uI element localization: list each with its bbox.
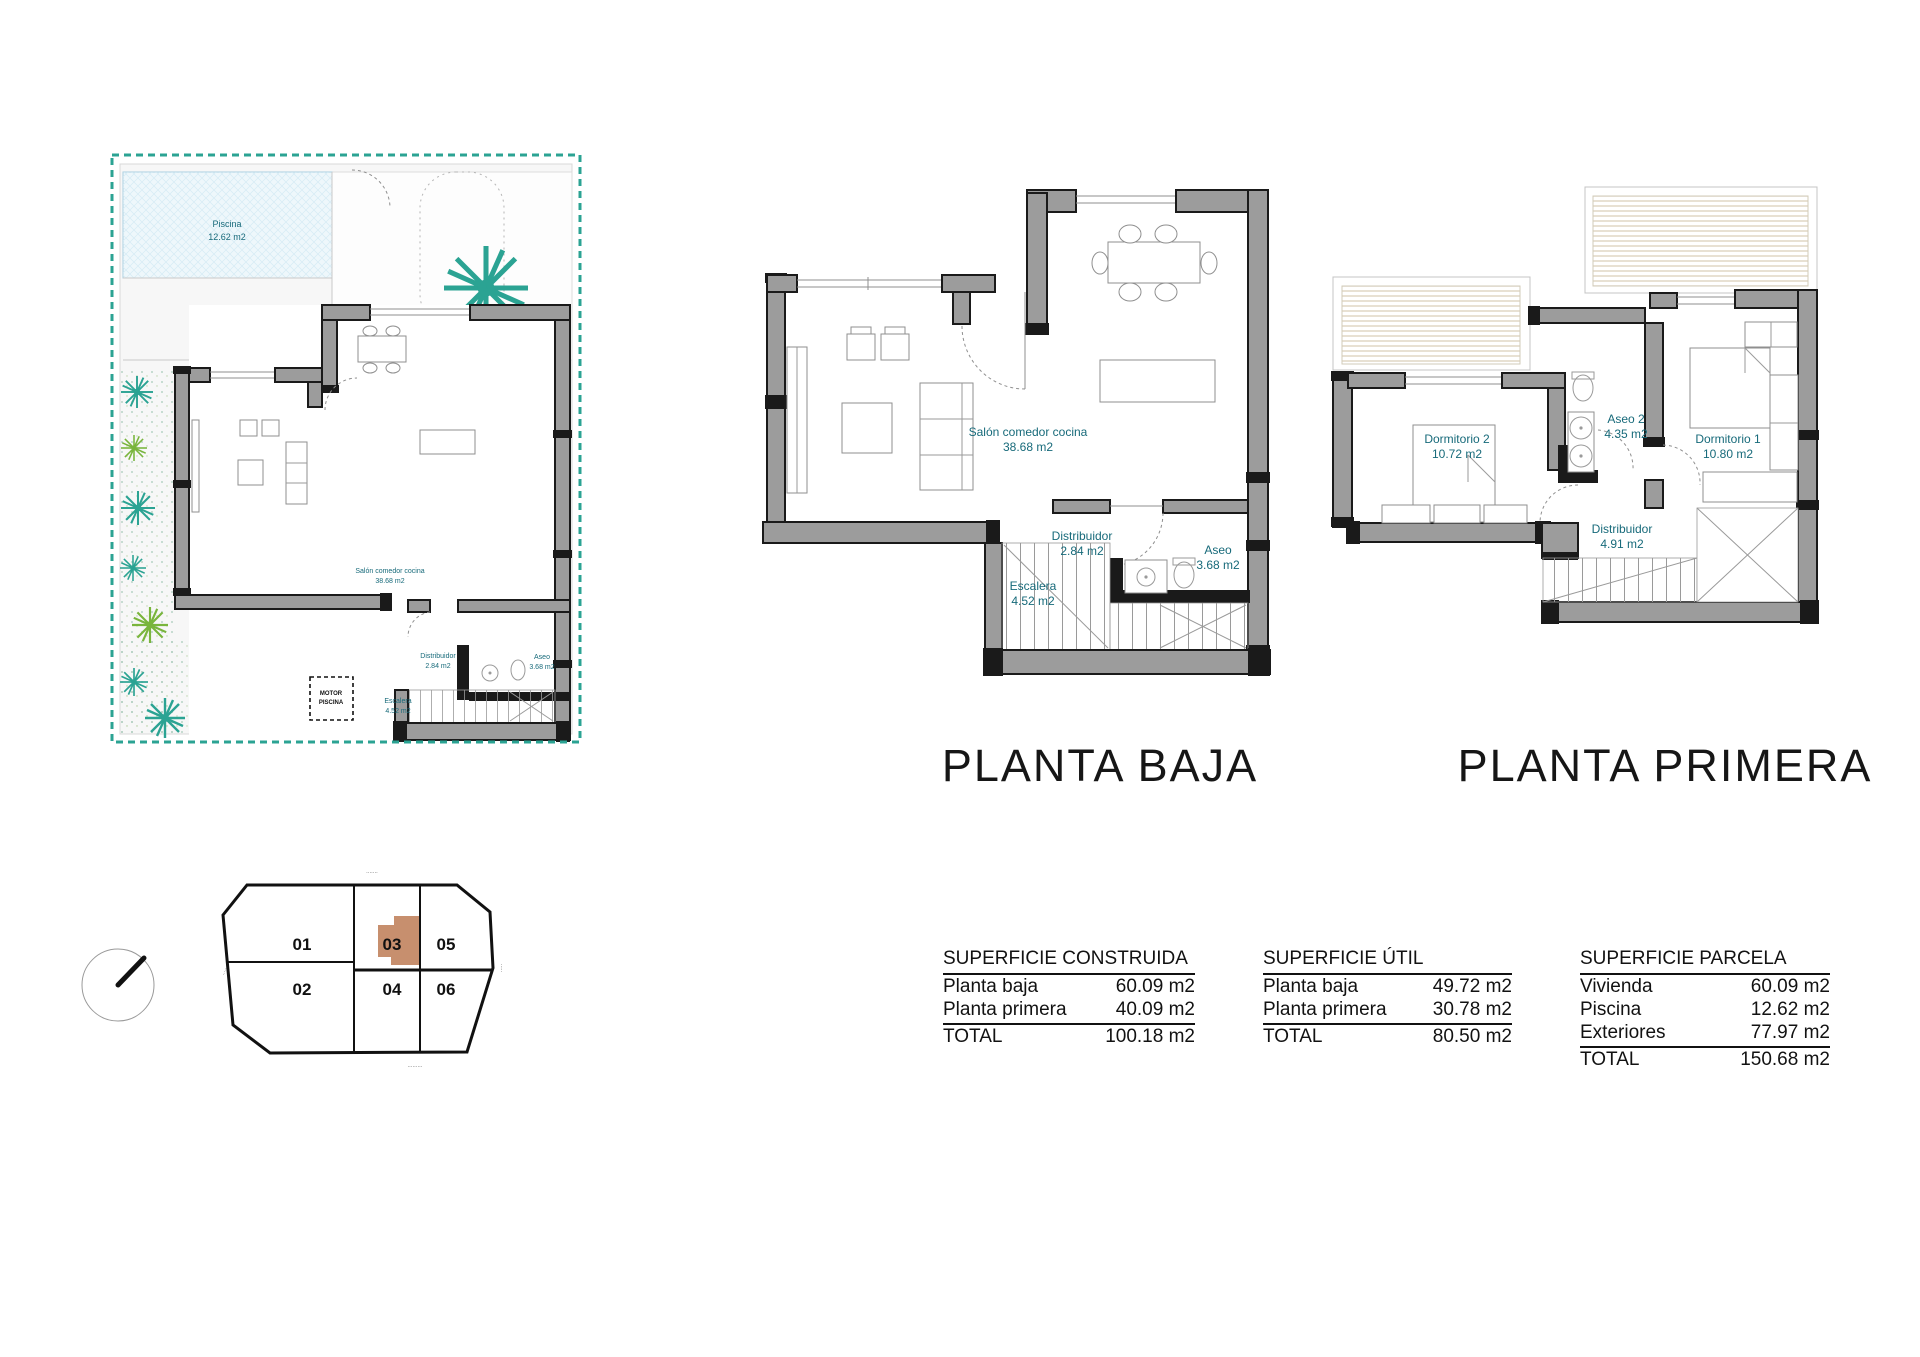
plot-outline — [223, 885, 493, 1053]
site-room-label: Aseo — [534, 654, 550, 661]
planta-baja-title: PLANTA BAJA — [942, 740, 1258, 792]
table-total-row: TOTAL 100.18 m2 — [943, 1023, 1195, 1048]
row-value: 12.62 m2 — [1751, 999, 1830, 1021]
pool: Piscina 12.62 m2 — [123, 172, 332, 278]
pool-motor-box: MOTOR PISCINA — [310, 677, 353, 720]
unit-label: 01 — [293, 935, 312, 954]
room-label: Aseo 2 — [1607, 412, 1645, 426]
plot-diagram: 01 02 03 04 05 06 ······· ········· ····… — [60, 850, 520, 1090]
row-value: 49.72 m2 — [1433, 976, 1512, 998]
street-label-right: ····· — [498, 964, 504, 973]
unit-label-highlighted: 03 — [383, 935, 402, 954]
total-label: TOTAL — [1263, 1025, 1322, 1048]
compass — [82, 949, 154, 1021]
site-room-label: Distribuidor — [420, 653, 456, 660]
table-total-row: TOTAL 150.68 m2 — [1580, 1046, 1830, 1071]
table-total-row: TOTAL 80.50 m2 — [1263, 1023, 1512, 1048]
site-room-area: 38.68 m2 — [375, 578, 404, 585]
pool-name-label: Piscina — [212, 219, 241, 229]
room-area: 4.52 m2 — [1011, 594, 1055, 608]
motor-label-2: PISCINA — [319, 700, 344, 706]
room-label: Dormitorio 1 — [1695, 432, 1761, 446]
row-label: Piscina — [1580, 999, 1641, 1021]
row-label: Planta primera — [943, 999, 1067, 1021]
room-label: Distribuidor — [1052, 529, 1113, 543]
row-label: Exteriores — [1580, 1022, 1666, 1044]
motor-label-1: MOTOR — [320, 691, 343, 697]
site-room-label: Escalera — [384, 698, 411, 705]
unit-label: 06 — [437, 980, 456, 999]
row-value: 77.97 m2 — [1751, 1022, 1830, 1044]
row-label: Vivienda — [1580, 976, 1653, 998]
north-arrow — [118, 958, 144, 985]
table-title: SUPERFICIE ÚTIL — [1263, 948, 1512, 975]
total-label: TOTAL — [1580, 1048, 1639, 1071]
unit-label: 04 — [383, 980, 402, 999]
table-superficie-util: SUPERFICIE ÚTIL Planta baja 49.72 m2 Pla… — [1263, 948, 1512, 1048]
table-row: Planta baja 49.72 m2 — [1263, 975, 1512, 998]
planta-primera-title: PLANTA PRIMERA — [1458, 740, 1873, 792]
room-label: Escalera — [1010, 579, 1057, 593]
unit-label: 05 — [437, 935, 456, 954]
plan-sheet: Piscina 12.62 m2 — [0, 0, 1920, 1357]
room-label: Aseo — [1204, 543, 1232, 557]
room-area: 10.72 m2 — [1432, 447, 1482, 461]
unit-label: 02 — [293, 980, 312, 999]
room-area: 4.35 m2 — [1604, 427, 1648, 441]
table-row: Planta primera 40.09 m2 — [943, 998, 1195, 1021]
street-label-top: ······· — [366, 870, 378, 876]
table-row: Piscina 12.62 m2 — [1580, 998, 1830, 1021]
site-room-area: 2.84 m2 — [425, 663, 450, 670]
table-row: Vivienda 60.09 m2 — [1580, 975, 1830, 998]
room-area: 10.80 m2 — [1703, 447, 1753, 461]
room-area: 3.68 m2 — [1196, 558, 1240, 572]
table-row: Planta primera 30.78 m2 — [1263, 998, 1512, 1021]
street-label-bottom: ········· — [408, 1064, 423, 1070]
site-plan: Piscina 12.62 m2 — [90, 130, 590, 760]
site-room-area: 4.52 m2 — [385, 708, 410, 715]
planta-primera-plan: Dormitorio 2 10.72 m2 Aseo 2 4.35 m2 Dor… — [1330, 140, 1870, 710]
room-area: 38.68 m2 — [1003, 440, 1053, 454]
row-value: 60.09 m2 — [1116, 976, 1195, 998]
pool-area-label: 12.62 m2 — [208, 232, 246, 242]
site-room-label: Salón comedor cocina — [355, 568, 424, 575]
row-label: Planta baja — [943, 976, 1038, 998]
table-row: Planta baja 60.09 m2 — [943, 975, 1195, 998]
site-room-area: 3.68 m2 — [529, 664, 554, 671]
room-area: 4.91 m2 — [1600, 537, 1644, 551]
row-value: 40.09 m2 — [1116, 999, 1195, 1021]
row-value: 30.78 m2 — [1433, 999, 1512, 1021]
table-row: Exteriores 77.97 m2 — [1580, 1021, 1830, 1044]
table-superficie-parcela: SUPERFICIE PARCELA Vivienda 60.09 m2 Pis… — [1580, 948, 1830, 1071]
total-value: 80.50 m2 — [1433, 1025, 1512, 1048]
row-value: 60.09 m2 — [1751, 976, 1830, 998]
room-area: 2.84 m2 — [1060, 544, 1104, 558]
total-label: TOTAL — [943, 1025, 1002, 1048]
row-label: Planta primera — [1263, 999, 1387, 1021]
table-superficie-construida: SUPERFICIE CONSTRUIDA Planta baja 60.09 … — [943, 948, 1195, 1048]
room-label: Distribuidor — [1592, 522, 1653, 536]
table-title: SUPERFICIE PARCELA — [1580, 948, 1830, 975]
planta-baja-plan: Salón comedor cocina 38.68 m2 Distribuid… — [600, 130, 1290, 710]
room-label: Dormitorio 2 — [1424, 432, 1490, 446]
table-title: SUPERFICIE CONSTRUIDA — [943, 948, 1195, 975]
total-value: 150.68 m2 — [1740, 1048, 1830, 1071]
room-label: Salón comedor cocina — [969, 425, 1088, 439]
terraces — [1333, 187, 1817, 370]
house-ground — [189, 305, 570, 740]
row-label: Planta baja — [1263, 976, 1358, 998]
total-value: 100.18 m2 — [1105, 1025, 1195, 1048]
